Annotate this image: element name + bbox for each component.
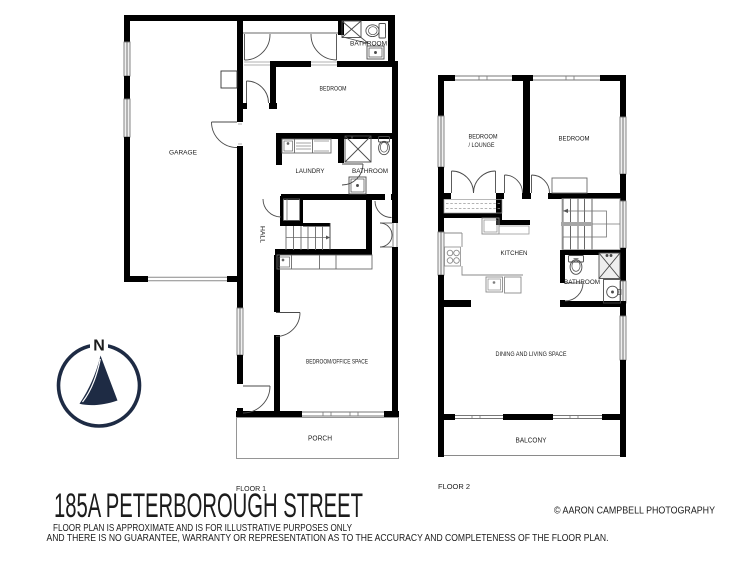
svg-text:BEDROOM/OFFICE SPACE: BEDROOM/OFFICE SPACE: [306, 359, 368, 366]
svg-text:BATHROOM: BATHROOM: [352, 168, 388, 175]
svg-text:KITCHEN: KITCHEN: [501, 250, 528, 257]
svg-text:BEDROOM: BEDROOM: [559, 136, 590, 143]
svg-text:HALL: HALL: [259, 226, 266, 243]
svg-text:/ LOUNGE: / LOUNGE: [469, 142, 495, 149]
svg-text:BATHROOM: BATHROOM: [564, 279, 600, 286]
svg-text:BATHROOM: BATHROOM: [350, 41, 387, 48]
svg-text:BEDROOM: BEDROOM: [469, 134, 498, 141]
svg-text:DINING AND LIVING SPACE: DINING AND LIVING SPACE: [496, 351, 567, 358]
svg-text:PORCH: PORCH: [308, 434, 332, 443]
svg-text:© AARON CAMPBELL PHOTOGRAPHY: © AARON CAMPBELL PHOTOGRAPHY: [554, 505, 715, 517]
svg-text:GARAGE: GARAGE: [169, 150, 197, 157]
svg-text:LAUNDRY: LAUNDRY: [296, 168, 325, 175]
svg-text:N: N: [93, 338, 105, 355]
svg-text:BEDROOM: BEDROOM: [320, 86, 347, 93]
svg-text:FLOOR 2: FLOOR 2: [438, 482, 470, 491]
svg-text:185A PETERBOROUGH STREET: 185A PETERBOROUGH STREET: [54, 487, 363, 525]
svg-text:BALCONY: BALCONY: [516, 438, 547, 445]
svg-text:AND THERE IS NO GUARANTEE, WAR: AND THERE IS NO GUARANTEE, WARRANTY OR R…: [47, 532, 609, 544]
